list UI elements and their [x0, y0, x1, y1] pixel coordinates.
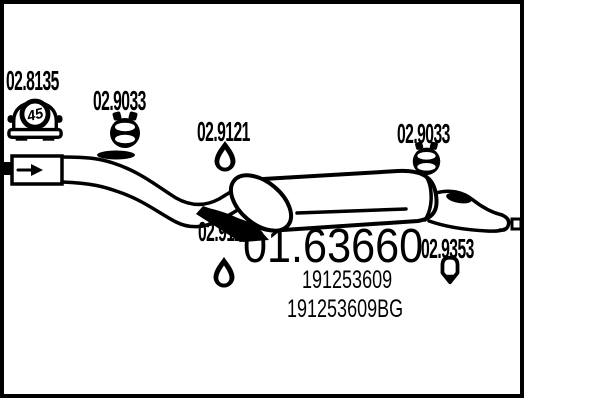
tail-pipe: [429, 191, 521, 231]
car-rear-icon: 45: [6, 94, 64, 142]
diagram-canvas: 02.8135 02.9033 02.9121 02.9033 02.9121 …: [0, 0, 600, 400]
oem-number-2: 191253609BG: [287, 297, 403, 322]
oem-number-1: 191253609: [302, 268, 392, 293]
ring-hanger-icon-front: [211, 140, 239, 174]
pipe-bracket-bump: [97, 151, 135, 160]
part-label-vehicle: 02.8135: [6, 67, 59, 95]
front-flange: [3, 156, 62, 184]
clamp-icon-rear: [410, 141, 443, 178]
ring-hanger-icon-mid: [210, 256, 238, 290]
pin-hanger-icon: [437, 254, 463, 286]
exhaust-silencer-drawing: [0, 0, 600, 400]
main-part-number: 01.63660: [243, 223, 423, 271]
clamp-icon-front: [107, 111, 143, 151]
